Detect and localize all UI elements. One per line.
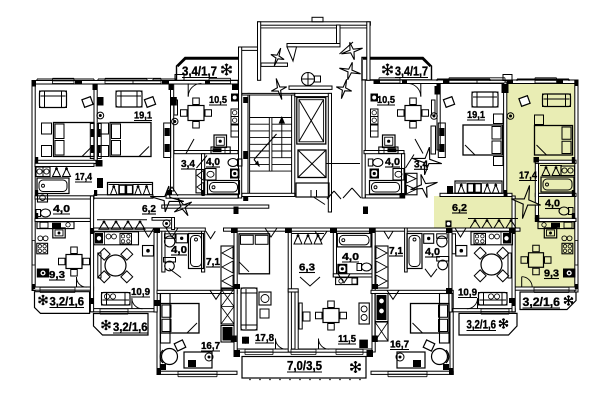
svg-text:11,5: 11,5 bbox=[338, 333, 356, 345]
svg-text:10,5: 10,5 bbox=[209, 94, 227, 106]
svg-text:4,0: 4,0 bbox=[206, 156, 220, 168]
svg-text:3,2/1,6: 3,2/1,6 bbox=[113, 322, 148, 334]
svg-text:4,0: 4,0 bbox=[342, 251, 359, 263]
svg-text:4,0: 4,0 bbox=[385, 156, 400, 168]
svg-text:3,2/1,6: 3,2/1,6 bbox=[523, 297, 561, 309]
svg-text:3,2/1,6: 3,2/1,6 bbox=[467, 320, 497, 332]
svg-text:10,9: 10,9 bbox=[131, 286, 150, 298]
svg-text:3,2/1,6: 3,2/1,6 bbox=[50, 297, 85, 309]
svg-text:17,4: 17,4 bbox=[519, 170, 537, 182]
svg-text:7,0/3,5: 7,0/3,5 bbox=[287, 358, 322, 373]
svg-text:16,7: 16,7 bbox=[201, 340, 220, 352]
svg-text:17,8: 17,8 bbox=[255, 332, 274, 344]
svg-text:9,3: 9,3 bbox=[49, 269, 65, 281]
svg-text:10,9: 10,9 bbox=[458, 287, 477, 299]
svg-text:19,1: 19,1 bbox=[134, 110, 152, 122]
svg-text:3,4: 3,4 bbox=[181, 158, 195, 170]
svg-text:4,0: 4,0 bbox=[545, 198, 560, 210]
svg-text:9,3: 9,3 bbox=[544, 268, 559, 280]
svg-text:4,0: 4,0 bbox=[53, 203, 70, 215]
svg-text:19,1: 19,1 bbox=[467, 109, 485, 121]
svg-text:7,1: 7,1 bbox=[206, 256, 220, 268]
svg-text:3,4: 3,4 bbox=[414, 158, 428, 170]
svg-text:7,1: 7,1 bbox=[389, 245, 403, 257]
svg-text:6,3: 6,3 bbox=[299, 262, 315, 274]
svg-text:10,5: 10,5 bbox=[377, 94, 395, 106]
svg-text:6,2: 6,2 bbox=[142, 203, 156, 215]
svg-text:3,4/1,7: 3,4/1,7 bbox=[395, 65, 428, 79]
svg-text:17,4: 17,4 bbox=[75, 171, 92, 183]
svg-text:4,0: 4,0 bbox=[425, 246, 440, 258]
svg-text:16,7: 16,7 bbox=[390, 339, 409, 351]
svg-text:3,4/1,7: 3,4/1,7 bbox=[182, 65, 217, 79]
svg-text:6,2: 6,2 bbox=[452, 202, 467, 214]
svg-text:4,0: 4,0 bbox=[171, 244, 187, 256]
